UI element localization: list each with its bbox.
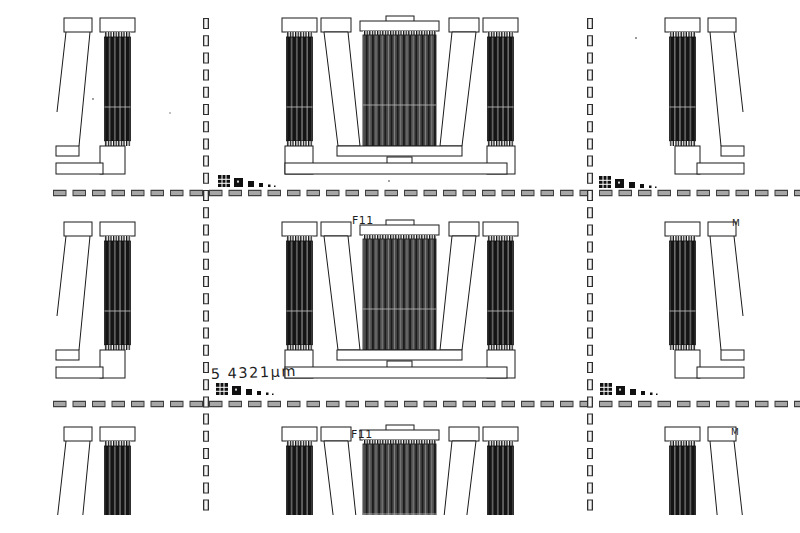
device-half-mid-right [665,222,744,378]
device-label-f11-bottom: F11 [351,428,373,441]
device-label-f11-mid: F11 [352,214,374,227]
calibration-marks-top-left [218,175,276,187]
device-full-bottom-center [282,425,518,533]
scanned-mask-figure: 5 4321µm F11 F11 M M [0,0,800,533]
device-full-mid-center [282,220,518,378]
device-row-3 [56,425,744,533]
device-half-top-left [56,18,135,174]
device-half-bottom-right [665,427,744,533]
device-label-m-mid: M [732,218,740,228]
calibration-marks-mid-left [216,383,274,395]
device-label-m-bottom: M [731,427,739,437]
device-half-bottom-left [56,427,135,533]
handwritten-scale-label: 5 4321µm [211,363,298,382]
device-half-mid-left [56,222,135,378]
mask-layout-canvas: 5 4321µm F11 F11 M M [0,0,800,533]
device-row-2 [56,220,744,378]
calibration-marks-mid-right [600,383,658,395]
device-half-top-right [665,18,744,174]
device-full-top-center [282,16,518,174]
device-row-1 [56,16,744,174]
calibration-marks-top-right [599,176,657,188]
